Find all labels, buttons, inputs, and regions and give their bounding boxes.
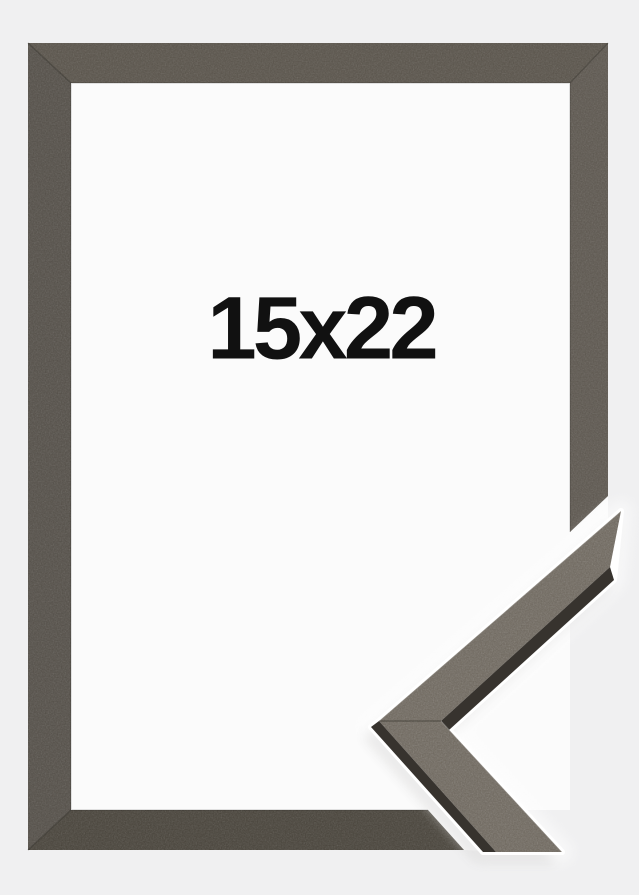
frame-product-photo: 15x22	[0, 0, 639, 895]
size-label: 15x22	[207, 277, 435, 380]
frame-illustration	[0, 0, 639, 895]
frame-opening	[71, 83, 608, 852]
